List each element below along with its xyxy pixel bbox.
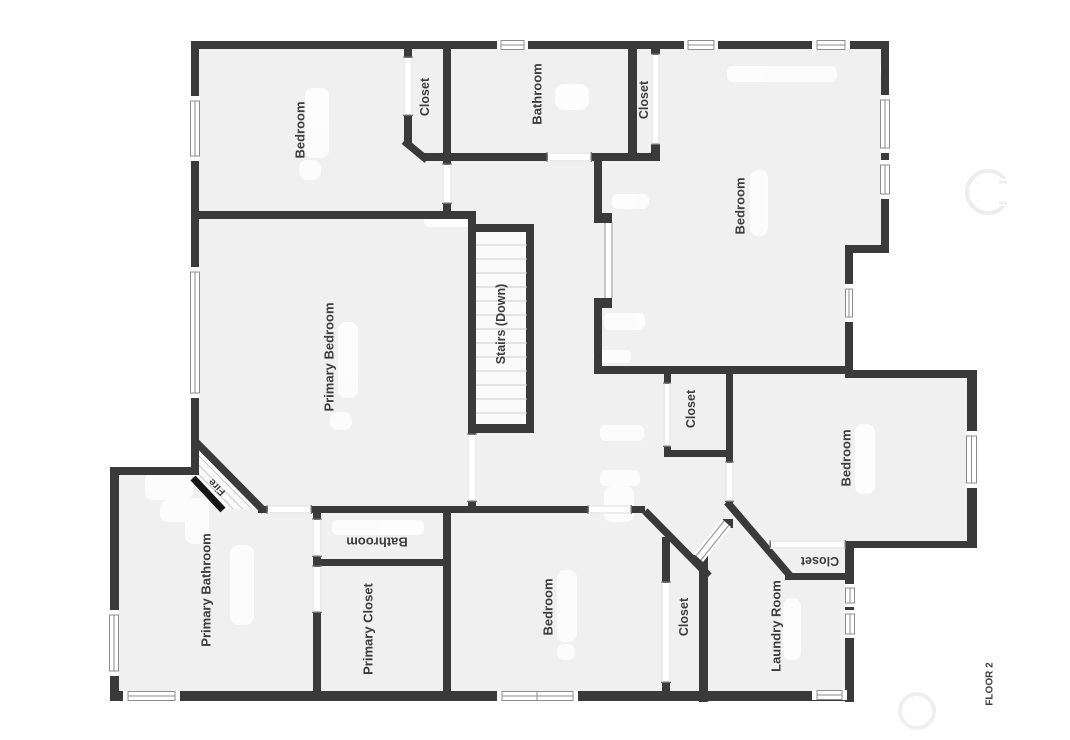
svg-text:Closet: Closet — [677, 597, 691, 636]
svg-text:Bedroom: Bedroom — [293, 101, 308, 158]
svg-text:Bedroom: Bedroom — [541, 578, 556, 635]
svg-text:Closet: Closet — [800, 554, 839, 568]
svg-text:Bedroom: Bedroom — [839, 429, 854, 486]
svg-text:Primary Closet: Primary Closet — [361, 582, 376, 674]
svg-text:Primary Bedroom: Primary Bedroom — [322, 302, 337, 411]
svg-text:Bathroom: Bathroom — [530, 63, 545, 124]
svg-text:Closet: Closet — [418, 77, 432, 116]
svg-text:Primary Bathroom: Primary Bathroom — [199, 533, 214, 646]
svg-text:FLOOR 2: FLOOR 2 — [985, 662, 996, 706]
svg-text:Closet: Closet — [637, 80, 651, 119]
svg-text:Bedroom: Bedroom — [733, 177, 748, 234]
svg-text:Closet: Closet — [684, 389, 698, 428]
svg-text:Stairs (Down): Stairs (Down) — [494, 284, 508, 365]
svg-text:Bathroom: Bathroom — [346, 535, 407, 550]
svg-text:Laundry Room: Laundry Room — [769, 580, 784, 672]
